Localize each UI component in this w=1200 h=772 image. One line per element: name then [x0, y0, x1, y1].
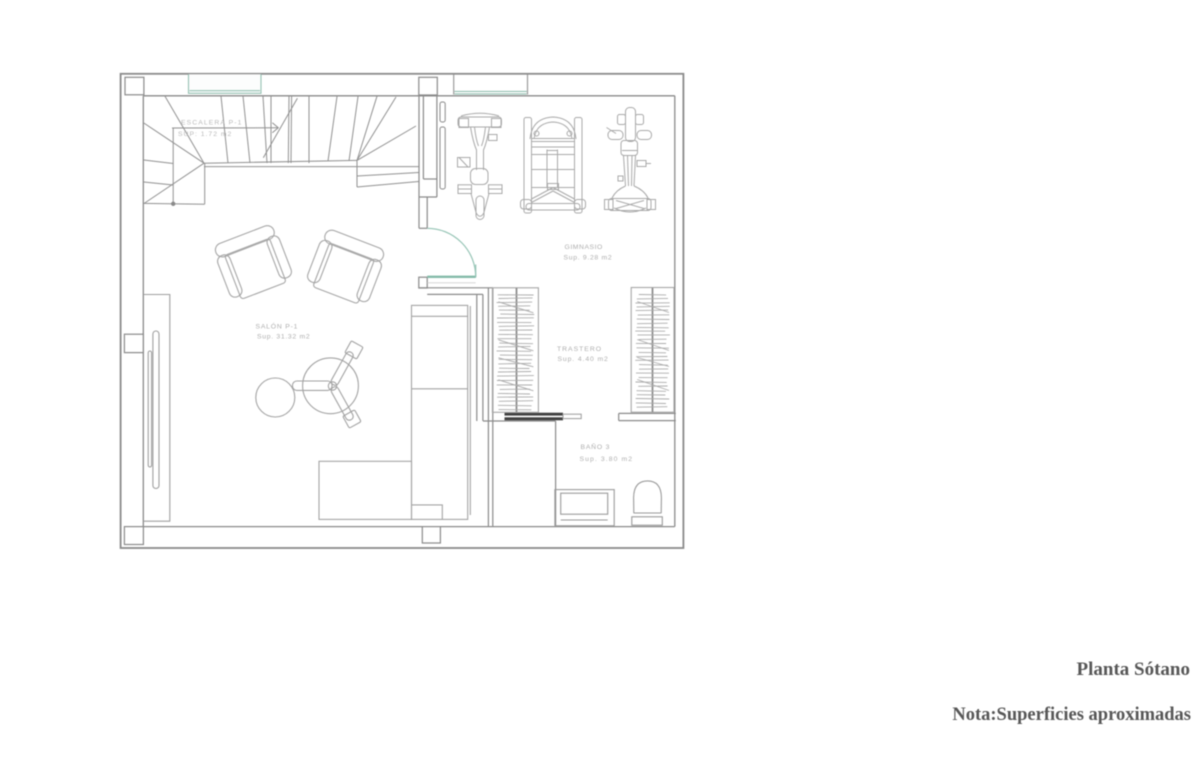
- svg-text:Sup. 4.40 m2: Sup. 4.40 m2: [558, 356, 609, 363]
- svg-text:Nota:Superficies aproximadas: Nota:Superficies aproximadas: [952, 705, 1191, 725]
- svg-text:SALÓN P-1: SALÓN P-1: [256, 322, 299, 331]
- svg-text:ESCALERA P-1: ESCALERA P-1: [181, 120, 243, 127]
- svg-text:Sup. 3.80 m2: Sup. 3.80 m2: [580, 456, 634, 463]
- svg-text:TRASTERO: TRASTERO: [557, 346, 602, 353]
- svg-text:SUP: 1.72 m2: SUP: 1.72 m2: [178, 131, 232, 138]
- svg-text:Sup. 9.28 m2: Sup. 9.28 m2: [564, 255, 613, 262]
- svg-text:Sup. 31.32 m2: Sup. 31.32 m2: [257, 334, 310, 341]
- svg-text:BAÑO 3: BAÑO 3: [581, 442, 611, 451]
- svg-text:GIMNASIO: GIMNASIO: [565, 244, 603, 251]
- svg-text:Planta Sótano: Planta Sótano: [1077, 659, 1191, 680]
